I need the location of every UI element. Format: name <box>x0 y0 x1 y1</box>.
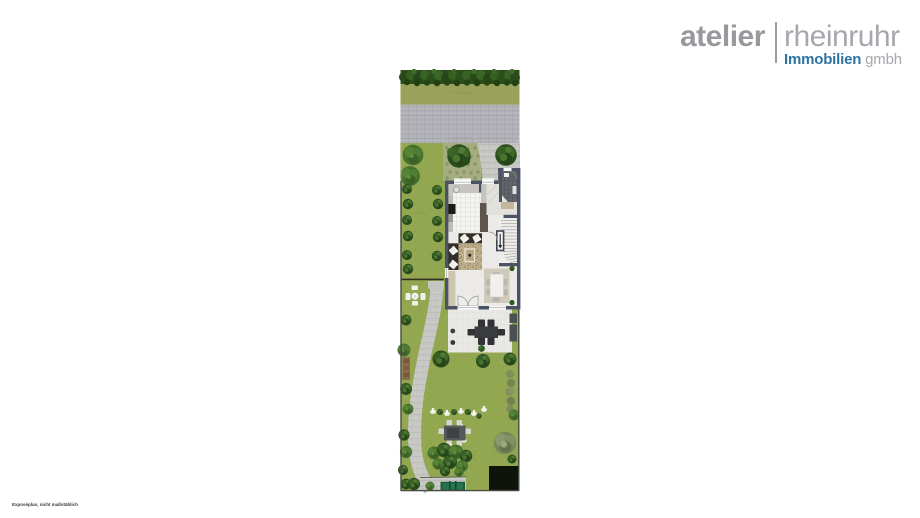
svg-text:Garten: Garten <box>416 211 426 215</box>
svg-text:Straßenname: Straßenname <box>451 91 473 95</box>
svg-text:Straßenname: Straßenname <box>452 136 473 140</box>
